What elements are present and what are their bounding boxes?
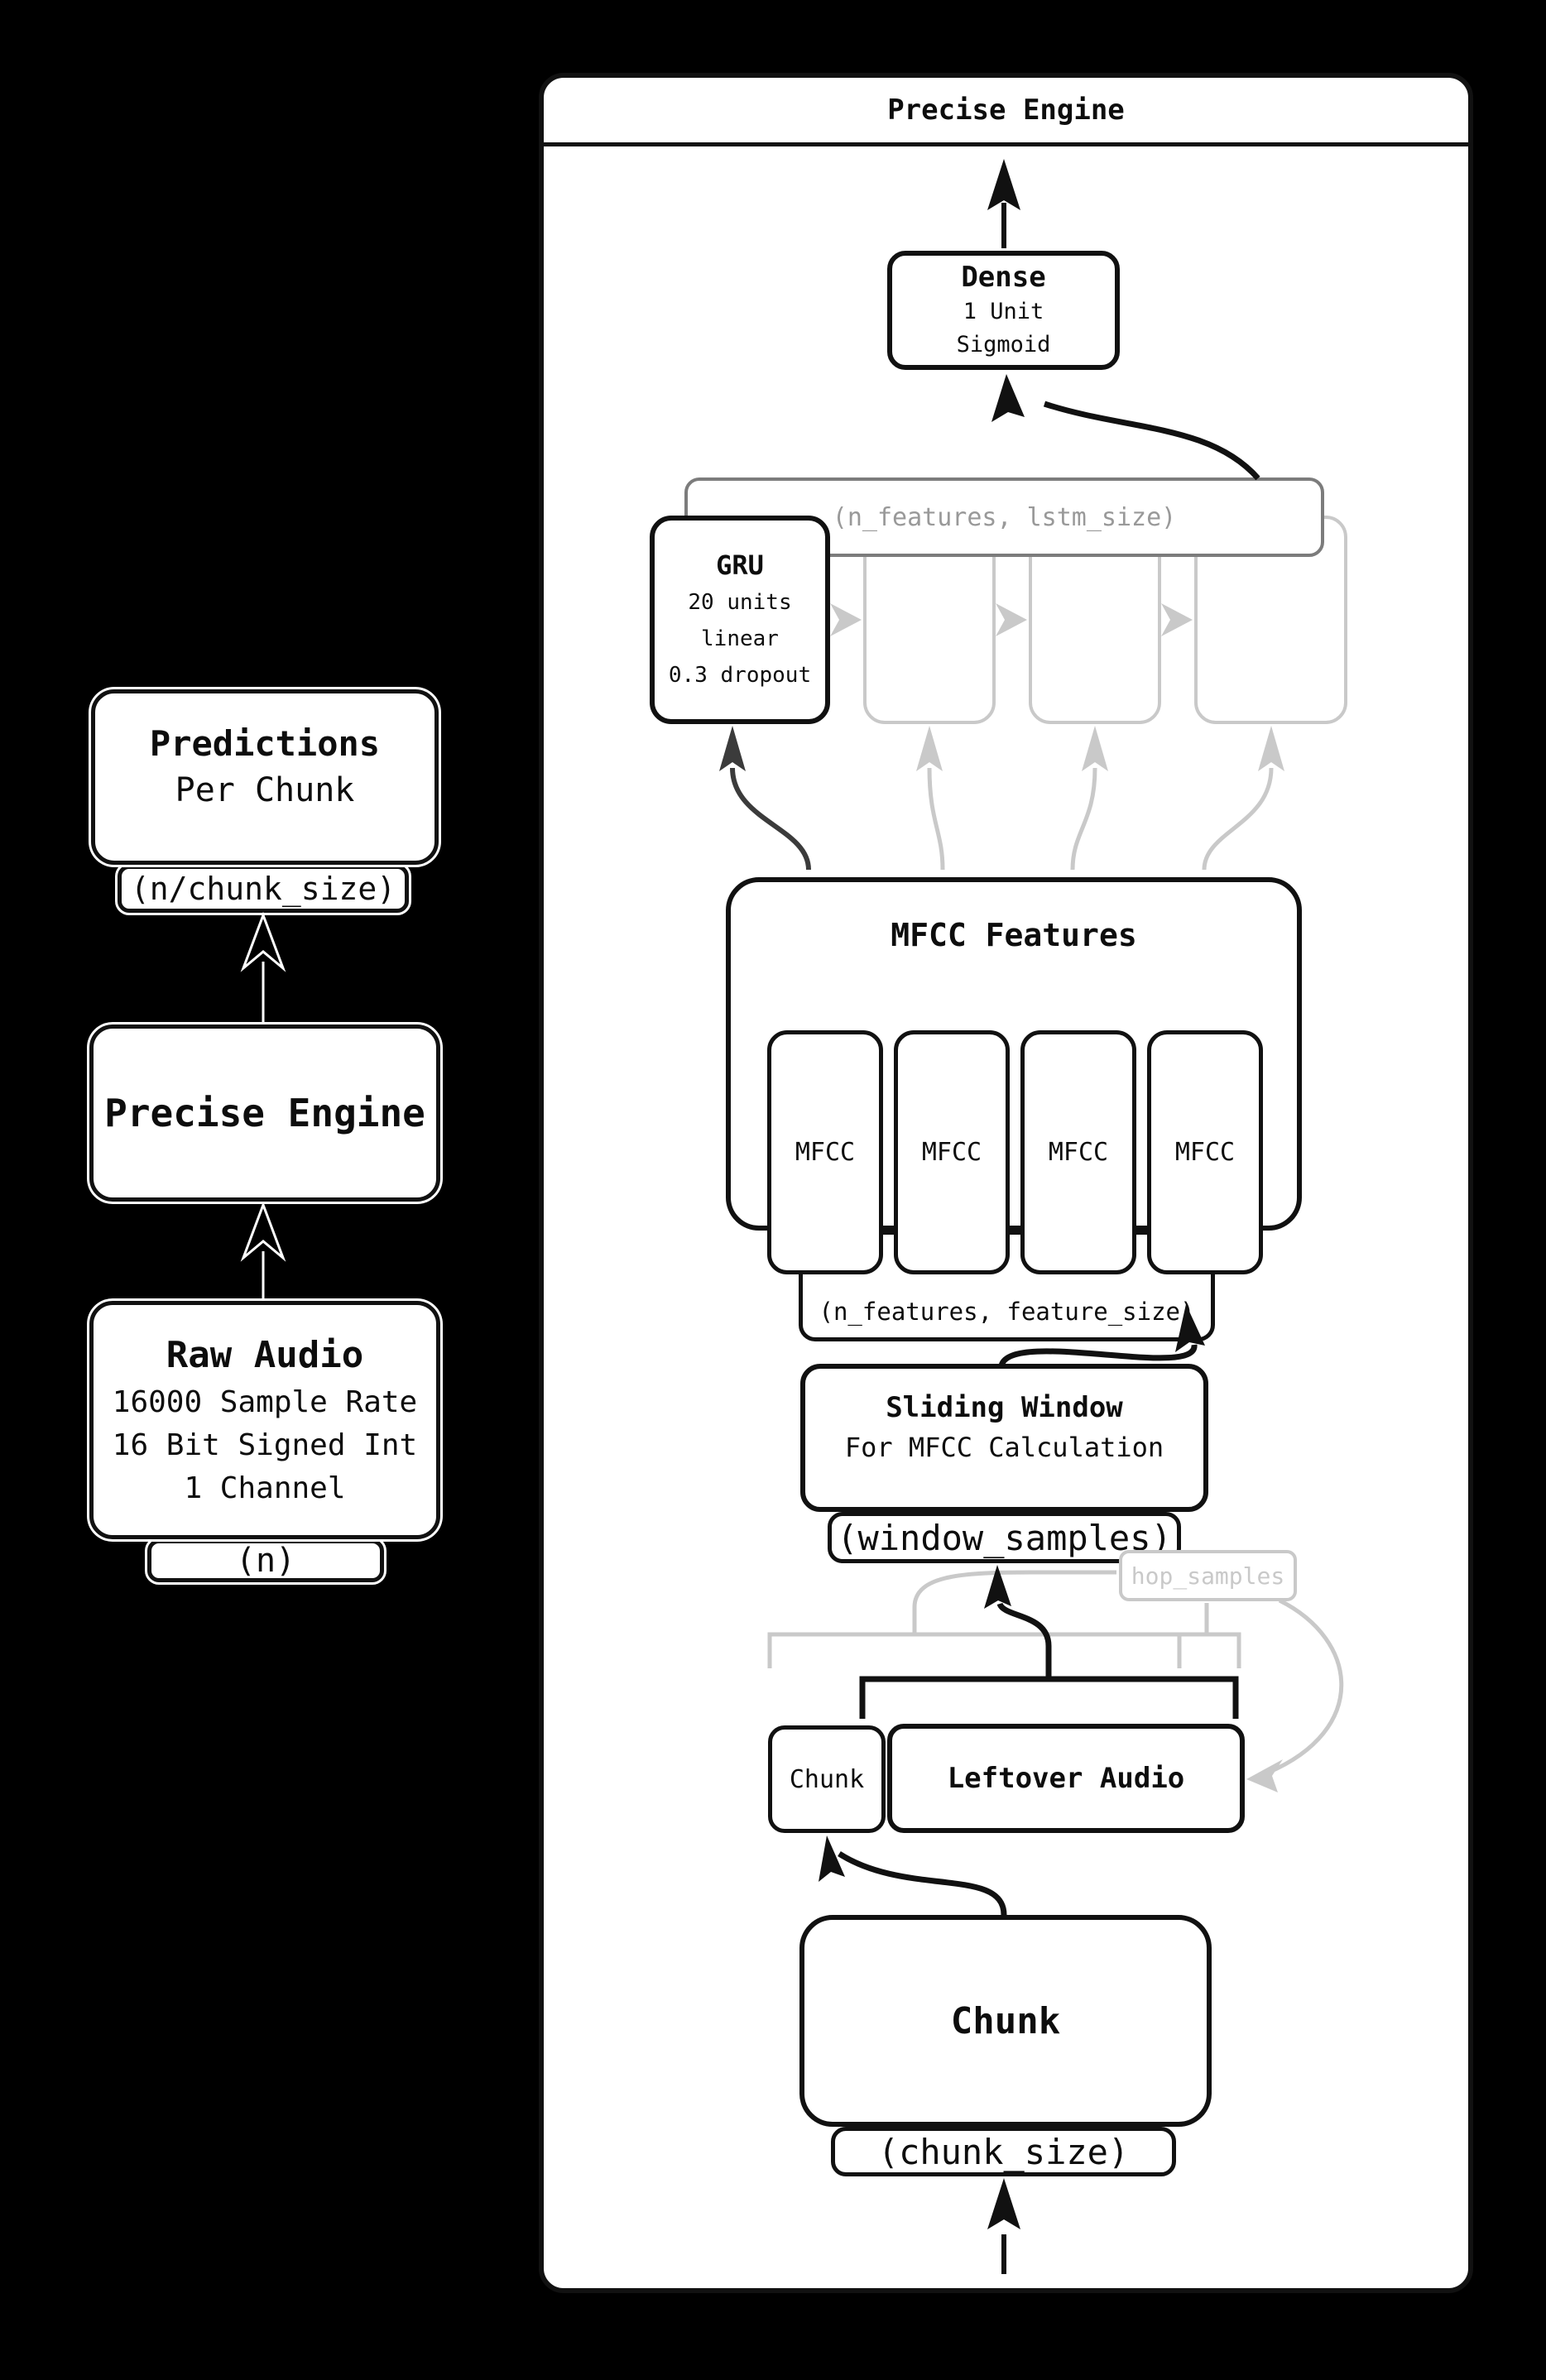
- raw-audio-line2: 16 Bit Signed Int: [113, 1424, 417, 1467]
- dense-line2: Sigmoid: [957, 329, 1051, 362]
- raw-audio-line1: 16000 Sample Rate: [113, 1381, 417, 1424]
- mfcc-cell-label: MFCC: [1175, 1138, 1235, 1167]
- mfcc-cell-1: MFCC: [767, 1030, 883, 1274]
- dense-title: Dense: [961, 259, 1045, 295]
- sliding-window-subtitle: For MFCC Calculation: [845, 1428, 1164, 1466]
- precise-engine-title: Precise Engine: [104, 1091, 425, 1135]
- mfcc-cell-label: MFCC: [795, 1138, 855, 1167]
- mfcc-cell-label: MFCC: [1049, 1138, 1108, 1167]
- gru-title: GRU: [716, 546, 764, 584]
- arrow-raw-audio-to-engine: [243, 1205, 283, 1299]
- dense-node: Dense 1 Unit Sigmoid: [887, 251, 1120, 370]
- buffer-leftover-label: Leftover Audio: [948, 1762, 1185, 1795]
- chunk-title: Chunk: [951, 2000, 1060, 2042]
- raw-audio-shape-tab: (n): [147, 1539, 384, 1582]
- mfcc-shape-label: (n_features, feature_size): [819, 1298, 1195, 1326]
- gru-line1: 20 units: [688, 584, 791, 621]
- raw-audio-line3: 1 Channel: [184, 1467, 345, 1510]
- raw-audio-box: Raw Audio 16000 Sample Rate 16 Bit Signe…: [89, 1301, 440, 1539]
- diagram-stage: (n/chunk_size) Predictions Per Chunk Pre…: [0, 0, 1546, 2380]
- predictions-shape-label: (n/chunk_size): [131, 871, 396, 907]
- hop-samples-tab: hop_samples: [1119, 1550, 1297, 1601]
- chunk-node: Chunk: [799, 1915, 1212, 2127]
- buffer-chunk-label: Chunk: [790, 1765, 864, 1794]
- arrow-engine-to-predictions: [243, 915, 283, 1022]
- mfcc-cell-3: MFCC: [1020, 1030, 1136, 1274]
- precise-engine-box: Precise Engine: [89, 1024, 440, 1202]
- lstm-shape-label: (n_features, lstm_size): [833, 503, 1176, 532]
- chunk-size-tab: (chunk_size): [831, 2127, 1176, 2176]
- buffer-chunk-cell: Chunk: [768, 1725, 886, 1833]
- mfcc-features-title: MFCC Features: [891, 917, 1136, 953]
- predictions-subtitle: Per Chunk: [175, 768, 355, 813]
- panel-title-bar: Precise Engine: [544, 78, 1468, 146]
- raw-audio-title: Raw Audio: [166, 1330, 363, 1381]
- predictions-title: Predictions: [150, 720, 380, 768]
- predictions-box: Predictions Per Chunk: [91, 689, 439, 865]
- gru-line3: 0.3 dropout: [669, 657, 811, 693]
- raw-audio-shape-label: (n): [236, 1542, 295, 1580]
- predictions-shape-tab: (n/chunk_size): [118, 865, 409, 913]
- buffer-leftover-cell: Leftover Audio: [887, 1724, 1245, 1833]
- gru-line2: linear: [701, 621, 779, 657]
- panel-title: Precise Engine: [887, 94, 1125, 127]
- sliding-window-node: Sliding Window For MFCC Calculation: [800, 1364, 1208, 1512]
- chunk-size-label: (chunk_size): [878, 2132, 1129, 2172]
- mfcc-cell-label: MFCC: [922, 1138, 982, 1167]
- hop-samples-label: hop_samples: [1131, 1562, 1284, 1590]
- mfcc-cell-4: MFCC: [1147, 1030, 1263, 1274]
- mfcc-cell-2: MFCC: [894, 1030, 1010, 1274]
- dense-line1: 1 Unit: [963, 295, 1044, 329]
- sliding-window-title: Sliding Window: [886, 1387, 1123, 1428]
- gru-node: GRU 20 units linear 0.3 dropout: [650, 516, 830, 724]
